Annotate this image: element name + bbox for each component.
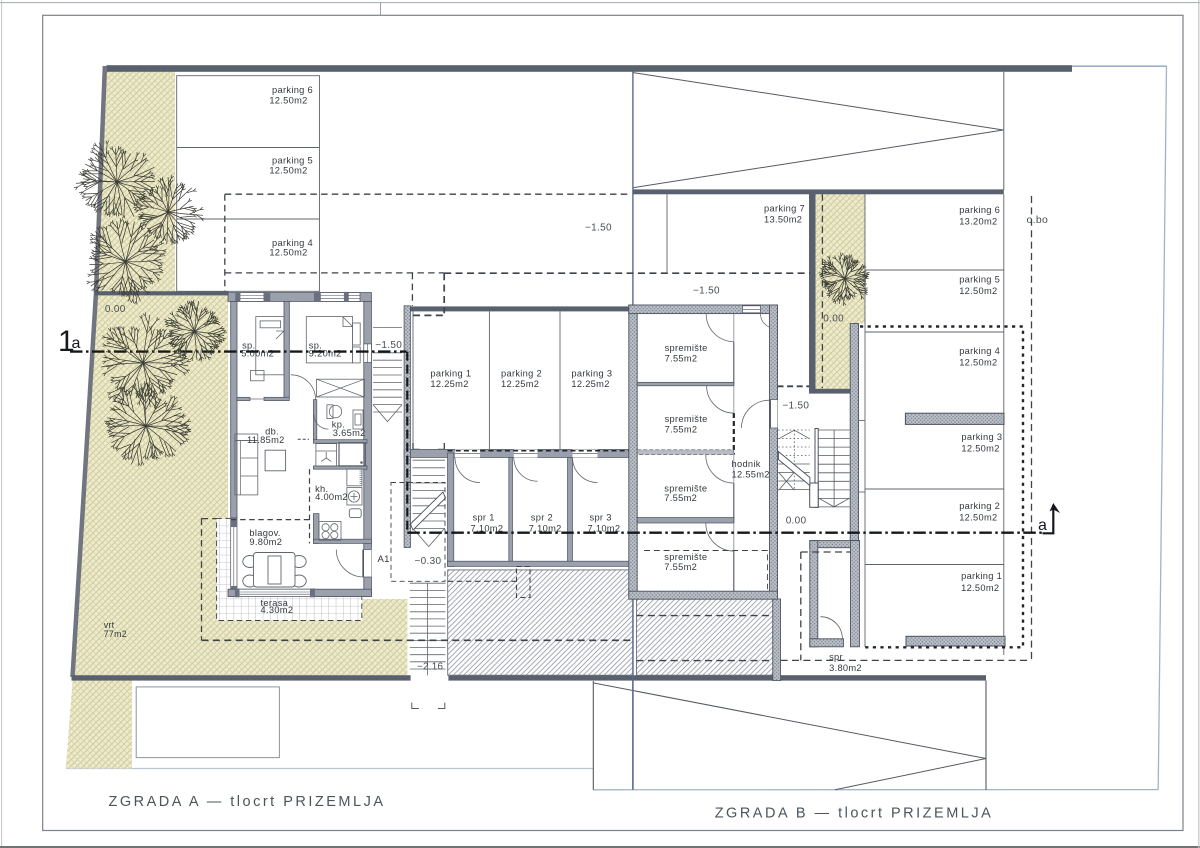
svg-text:ZGRADA B — tlocrt PRIZEMLJA: ZGRADA B — tlocrt PRIZEMLJA — [715, 806, 994, 822]
svg-text:parking 4: parking 4 — [272, 238, 313, 248]
svg-text:0.00: 0.00 — [105, 304, 126, 315]
svg-text:spremište: spremište — [665, 343, 708, 353]
svg-text:−1.50: −1.50 — [375, 340, 402, 351]
svg-text:parking 1: parking 1 — [430, 369, 471, 379]
svg-text:−1.50: −1.50 — [782, 400, 809, 411]
svg-text:7.55m2: 7.55m2 — [664, 562, 697, 572]
svg-text:parking 7: parking 7 — [764, 204, 805, 214]
svg-text:−2.16: −2.16 — [417, 661, 444, 672]
svg-text:12.50m2: 12.50m2 — [959, 358, 997, 368]
svg-text:parking 3: parking 3 — [961, 432, 1002, 442]
svg-text:−1.50: −1.50 — [693, 286, 720, 297]
svg-text:hodnik: hodnik — [732, 459, 761, 469]
svg-text:spr 2: spr 2 — [531, 513, 553, 523]
svg-text:parking 5: parking 5 — [959, 275, 1000, 285]
svg-text:12.50m2: 12.50m2 — [269, 165, 307, 175]
svg-text:12.50m2: 12.50m2 — [959, 286, 997, 296]
svg-text:11.85m2: 11.85m2 — [247, 435, 285, 445]
svg-text:−0.30: −0.30 — [415, 556, 442, 567]
svg-text:9.80m2: 9.80m2 — [249, 537, 282, 547]
svg-text:12.50m2: 12.50m2 — [961, 583, 999, 593]
svg-text:12.25m2: 12.25m2 — [571, 379, 609, 389]
svg-text:77m2: 77m2 — [104, 629, 127, 639]
svg-text:7.55m2: 7.55m2 — [665, 354, 698, 364]
svg-text:3.80m2: 3.80m2 — [829, 663, 862, 673]
svg-text:4.30m2: 4.30m2 — [261, 605, 294, 615]
svg-text:3.65m2: 3.65m2 — [333, 428, 366, 438]
svg-text:parking 6: parking 6 — [272, 85, 313, 95]
svg-text:spr 1: spr 1 — [473, 513, 495, 523]
svg-text:13.20m2: 13.20m2 — [959, 217, 997, 227]
svg-text:spremište: spremište — [664, 552, 707, 562]
svg-text:parking 1: parking 1 — [961, 571, 1002, 581]
svg-text:spremište: spremište — [665, 414, 708, 424]
svg-text:12.25m2: 12.25m2 — [430, 379, 468, 389]
svg-text:parking 5: parking 5 — [272, 156, 313, 166]
svg-text:12.55m2: 12.55m2 — [732, 470, 770, 480]
svg-text:4.00m2: 4.00m2 — [315, 492, 348, 502]
svg-text:parking 4: parking 4 — [959, 346, 1000, 356]
svg-text:spr 3: spr 3 — [590, 513, 612, 523]
svg-text:parking 3: parking 3 — [571, 369, 612, 379]
svg-text:parking 2: parking 2 — [501, 369, 542, 379]
svg-text:spremište: spremište — [664, 484, 707, 494]
svg-text:12.50m2: 12.50m2 — [959, 513, 997, 523]
svg-text:12.50m2: 12.50m2 — [961, 444, 999, 454]
svg-text:o.bo: o.bo — [1027, 214, 1049, 226]
svg-text:ZGRADA A — tlocrt PRIZEMLJA: ZGRADA A — tlocrt PRIZEMLJA — [109, 794, 386, 810]
svg-text:parking 2: parking 2 — [959, 501, 1000, 511]
svg-text:12.50m2: 12.50m2 — [269, 248, 307, 258]
svg-text:9.20m2: 9.20m2 — [309, 349, 342, 359]
svg-text:A1: A1 — [378, 554, 390, 565]
svg-text:12.50m2: 12.50m2 — [269, 96, 307, 106]
svg-text:7.55m2: 7.55m2 — [664, 493, 697, 503]
svg-text:7.55m2: 7.55m2 — [665, 425, 698, 435]
svg-text:a: a — [72, 335, 81, 352]
svg-text:0.00: 0.00 — [786, 516, 807, 527]
svg-text:parking 6: parking 6 — [959, 205, 1000, 215]
svg-text:5.00m2: 5.00m2 — [241, 349, 274, 359]
svg-text:13.50m2: 13.50m2 — [764, 215, 802, 225]
svg-text:−1.50: −1.50 — [585, 223, 612, 234]
svg-text:12.25m2: 12.25m2 — [501, 379, 539, 389]
svg-text:a: a — [1038, 517, 1047, 534]
svg-text:0.00: 0.00 — [823, 314, 844, 325]
